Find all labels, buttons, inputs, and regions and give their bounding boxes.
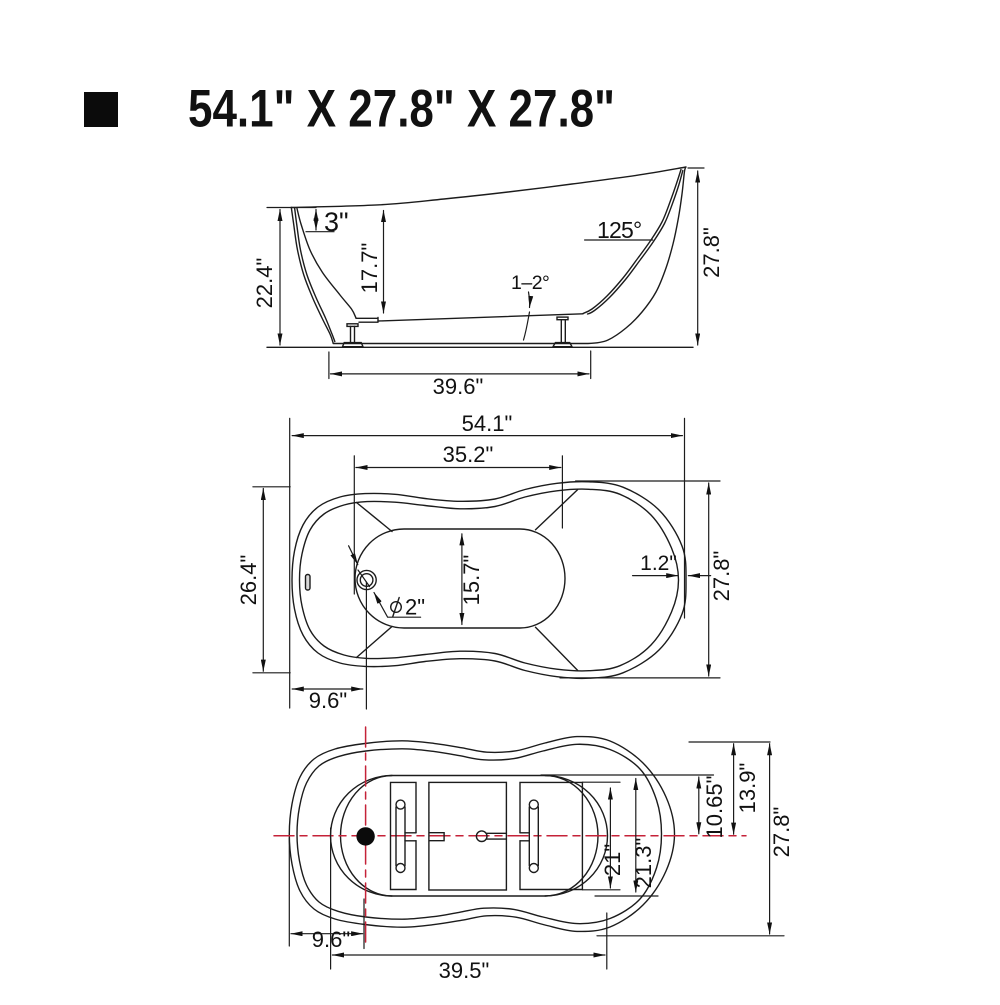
svg-text:54.1" X 27.8" X 27.8": 54.1" X 27.8" X 27.8" xyxy=(188,80,615,139)
svg-text:39.6": 39.6" xyxy=(433,374,484,399)
svg-text:10.65": 10.65" xyxy=(702,776,727,839)
svg-text:125°: 125° xyxy=(597,217,641,243)
svg-text:35.2": 35.2" xyxy=(443,442,494,467)
svg-text:21": 21" xyxy=(600,844,625,876)
svg-text:27.8": 27.8" xyxy=(709,551,734,602)
svg-text:27.8": 27.8" xyxy=(769,807,794,858)
svg-text:13.9": 13.9" xyxy=(735,763,760,814)
svg-text:54.1": 54.1" xyxy=(462,411,513,436)
svg-text:3": 3" xyxy=(324,207,349,237)
svg-text:15.7": 15.7" xyxy=(459,555,484,606)
svg-text:26.4": 26.4" xyxy=(236,555,261,606)
svg-text:17.7": 17.7" xyxy=(357,243,382,294)
svg-text:39.5": 39.5" xyxy=(439,958,490,983)
svg-text:1.2": 1.2" xyxy=(640,552,677,575)
svg-text:2": 2" xyxy=(405,595,425,620)
svg-text:21.3": 21.3" xyxy=(631,838,656,889)
svg-text:22.4": 22.4" xyxy=(252,258,277,309)
svg-text:1–2°: 1–2° xyxy=(511,272,549,294)
svg-text:27.8": 27.8" xyxy=(699,227,724,278)
svg-text:9.6": 9.6" xyxy=(309,688,347,713)
